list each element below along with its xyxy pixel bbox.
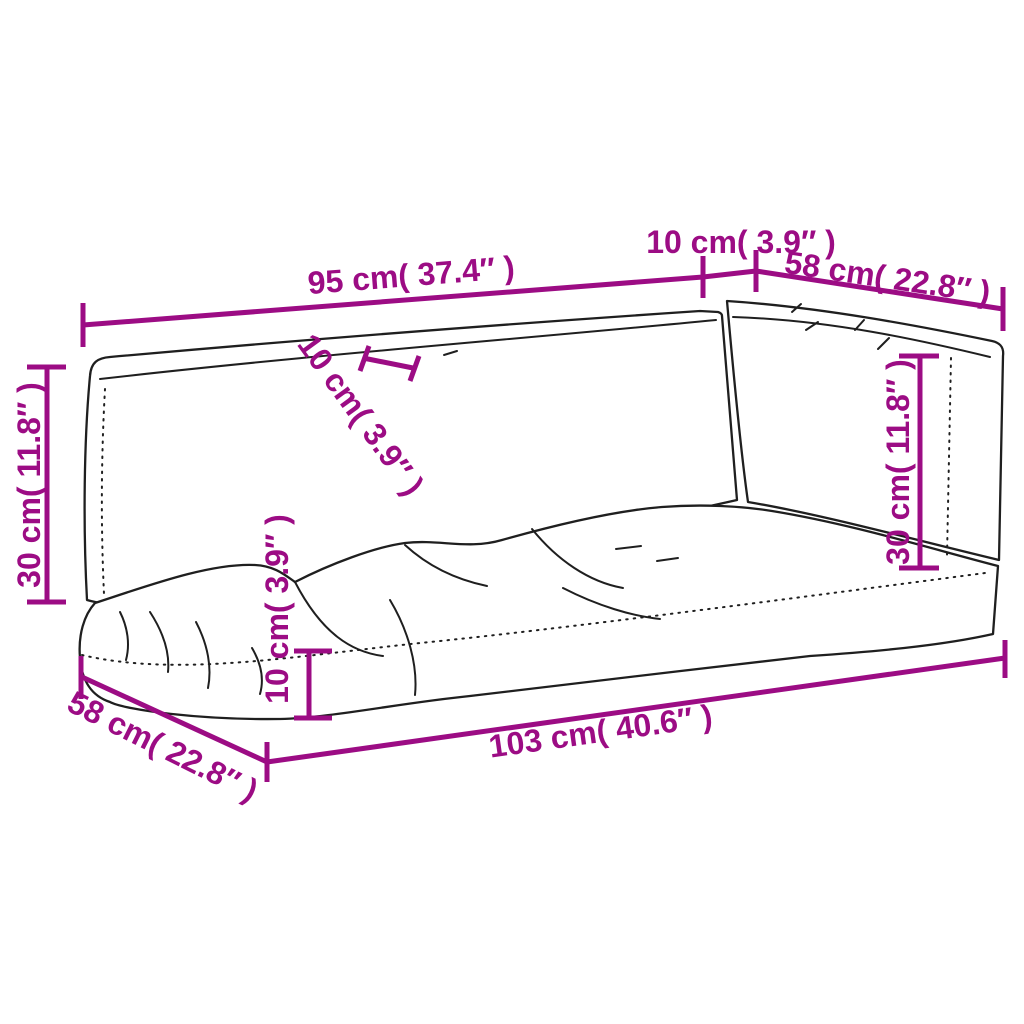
dimension-label-top-right-depth: 58 cm( 22.8″ ) bbox=[782, 244, 992, 310]
diagram-canvas: 95 cm( 37.4″ ) 10 cm( 3.9″ ) 58 cm( 22.8… bbox=[0, 0, 1024, 1024]
dimension-label-bottom-length: 103 cm( 40.6″ ) bbox=[486, 698, 714, 765]
dimension-line-top-gap bbox=[703, 271, 756, 277]
dimension-label-right-height: 30 cm( 11.8″ ) bbox=[880, 359, 916, 565]
pallet-cushion-dimension-diagram: 95 cm( 37.4″ ) 10 cm( 3.9″ ) 58 cm( 22.8… bbox=[0, 0, 1024, 1024]
cushion-drawing bbox=[80, 301, 1004, 719]
dimension-label-seat-thickness: 10 cm( 3.9″ ) bbox=[259, 514, 295, 704]
dimension-label-left-height: 30 cm( 11.8″ ) bbox=[11, 382, 47, 588]
